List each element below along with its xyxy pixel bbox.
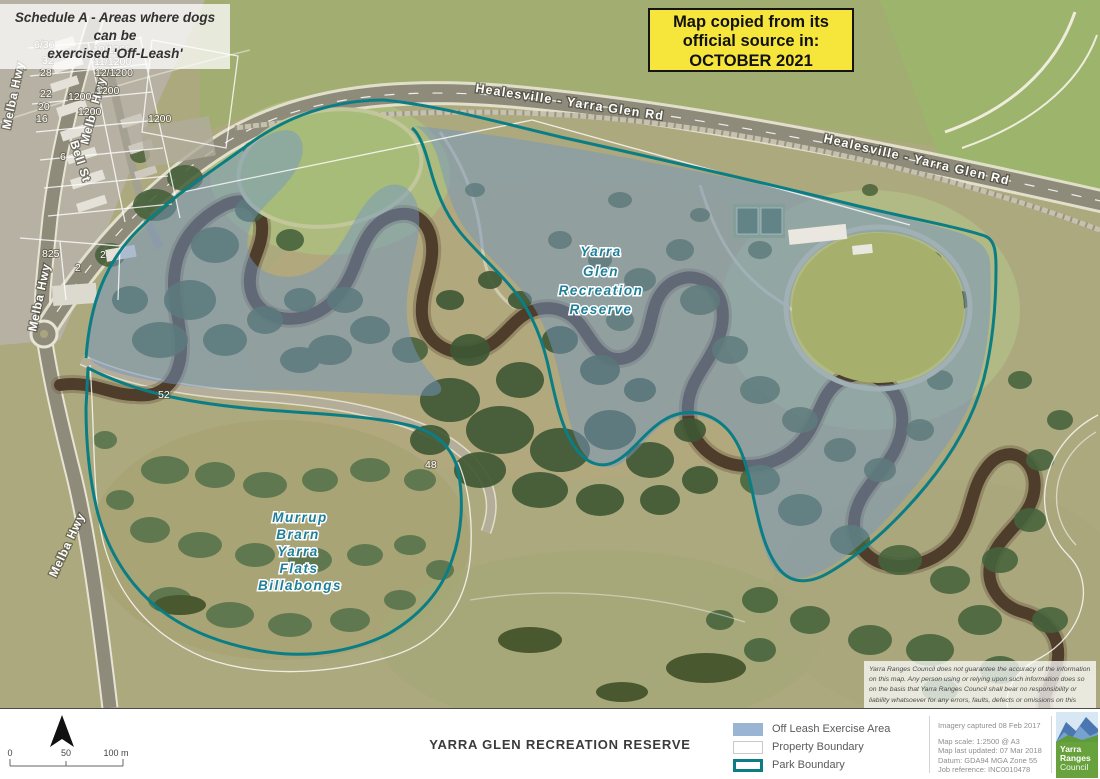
scale-bar: 0 50 100 m (4, 746, 136, 772)
scale-label-50: 50 (61, 748, 71, 758)
job-reference: Job reference: INC0010478 (938, 765, 1042, 775)
parcel-label: 1200 (78, 106, 102, 118)
legend-label: Off Leash Exercise Area (772, 723, 890, 735)
svg-text:Recreation: Recreation (559, 283, 644, 298)
footer: 0 50 100 m YARRA GLEN RECREATION RESERVE… (0, 708, 1100, 779)
logo-line3: Council (1060, 763, 1098, 772)
parcel-label: 2 (75, 262, 81, 274)
parcel-label: 52 (158, 389, 170, 401)
source-notice-line1: Map copied from its (650, 13, 852, 32)
parcel-label: 20 (38, 101, 50, 113)
legend-label: Property Boundary (772, 741, 864, 753)
parcel-label: 12/1200 (95, 67, 133, 79)
scale-label-100m: 100 m (103, 748, 128, 758)
map-source-notice: Map copied from its official source in: … (648, 8, 854, 72)
source-notice-line3: OCTOBER 2021 (650, 52, 852, 71)
parcel-label: 825 (42, 248, 60, 260)
park-boundary-swatch (733, 759, 763, 772)
map-title: YARRA GLEN RECREATION RESERVE (360, 737, 760, 752)
imagery-date: Imagery captured 08 Feb 2017 (938, 721, 1042, 731)
parcel-label: 22 (40, 88, 52, 100)
parcel-label: 28 (40, 67, 52, 79)
parcel-label: 1200 (68, 91, 92, 103)
off-leash-swatch (733, 723, 763, 736)
schedule-note-line1: Schedule A - Areas where dogs can be (6, 9, 224, 45)
svg-text:Flats: Flats (279, 561, 318, 576)
legend-label: Park Boundary (772, 759, 845, 771)
parcel-label: 6 (60, 151, 66, 163)
map-metadata: Imagery captured 08 Feb 2017 Map scale: … (938, 721, 1042, 775)
svg-text:Murrup: Murrup (272, 510, 328, 525)
footer-divider (929, 716, 930, 773)
council-logo-image (1056, 712, 1098, 742)
legend-item-park-boundary: Park Boundary (733, 756, 890, 774)
map-updated: Map last updated: 07 Mar 2018 (938, 746, 1042, 756)
legend-item-off-leash: Off Leash Exercise Area (733, 720, 890, 738)
schedule-note: Schedule A - Areas where dogs can be exe… (0, 4, 230, 69)
svg-text:Billabongs: Billabongs (258, 578, 342, 593)
parcel-label: 48 (425, 459, 437, 471)
parcel-label: 2 (100, 249, 106, 261)
property-boundary-swatch (733, 741, 763, 754)
legend: Off Leash Exercise Area Property Boundar… (733, 720, 890, 774)
parcel-label: 1200 (148, 113, 172, 125)
svg-text:Glen: Glen (583, 264, 619, 279)
map-sheet: Healesville - Yarra Glen Rd Healesville … (0, 0, 1100, 779)
council-logo: Yarra Ranges Council (1056, 712, 1098, 778)
aerial-map: Healesville - Yarra Glen Rd Healesville … (0, 0, 1100, 708)
map-datum: Datum: GDA94 MGA Zone 55 (938, 756, 1042, 766)
footer-divider (1051, 716, 1052, 773)
legend-item-property-boundary: Property Boundary (733, 738, 890, 756)
parcel-label: 16 (36, 113, 48, 125)
schedule-note-line2: exercised 'Off-Leash' (6, 45, 224, 63)
svg-text:Yarra: Yarra (580, 244, 622, 259)
map-scale: Map scale: 1:2500 @ A3 (938, 737, 1042, 747)
svg-text:Reserve: Reserve (569, 302, 632, 317)
scale-label-0: 0 (7, 748, 12, 758)
svg-text:Brarn: Brarn (276, 527, 320, 542)
parcel-label: 1200 (96, 85, 120, 97)
north-arrow-icon (46, 714, 78, 750)
svg-text:Yarra: Yarra (277, 544, 319, 559)
source-notice-line2: official source in: (650, 32, 852, 51)
